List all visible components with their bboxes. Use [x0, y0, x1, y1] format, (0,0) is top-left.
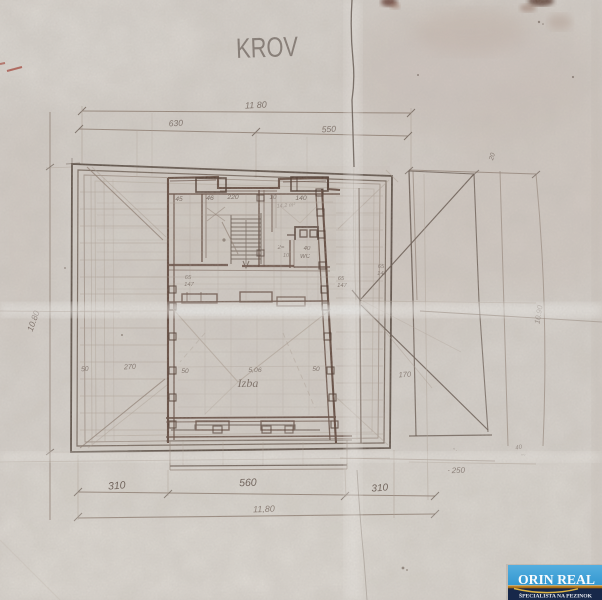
- svg-text:ŠPECIALISTA NA PEZINOK: ŠPECIALISTA NA PEZINOK: [519, 592, 593, 600]
- svg-text:ORIN REAL: ORIN REAL: [518, 572, 595, 587]
